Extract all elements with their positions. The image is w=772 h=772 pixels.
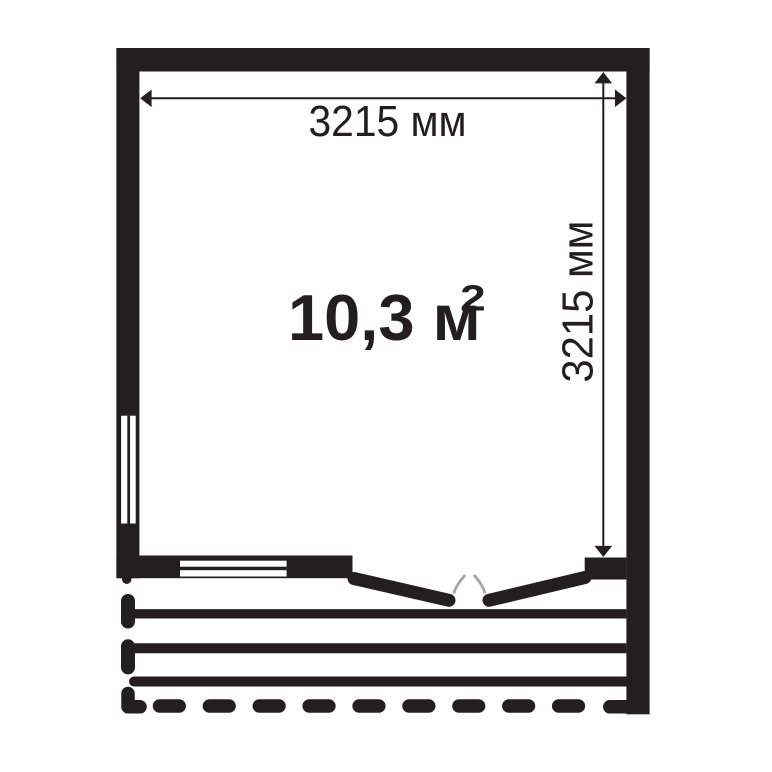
svg-text:2: 2 — [460, 278, 486, 318]
svg-text:3215 мм: 3215 мм — [554, 221, 603, 383]
svg-text:10,3 м: 10,3 м — [288, 281, 481, 354]
svg-text:3215 мм: 3215 мм — [309, 97, 467, 146]
